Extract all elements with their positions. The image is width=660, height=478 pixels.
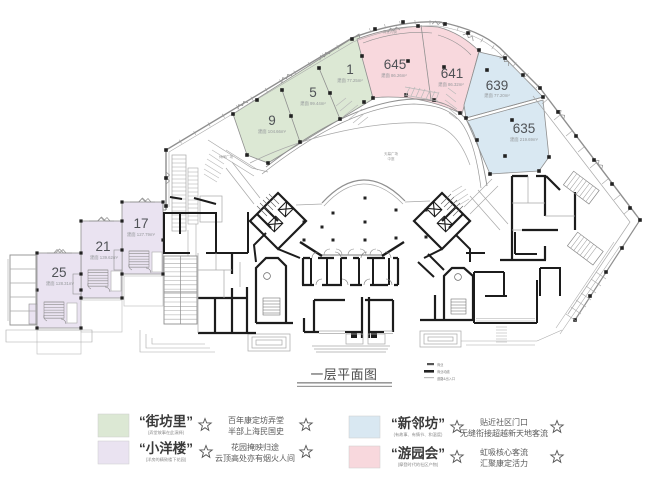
svg-text:汇聚康定活力: 汇聚康定活力: [480, 458, 528, 468]
svg-text:(摩登时代的社区产物): (摩登时代的社区产物): [398, 461, 439, 468]
svg-text:(洋房的精致楼下花园): (洋房的精致楼下花园): [146, 456, 187, 463]
svg-text:商业内街: 商业内街: [383, 29, 397, 34]
svg-text:“小洋楼”: “小洋楼”: [139, 440, 193, 456]
svg-text:商业: 商业: [437, 362, 443, 367]
svg-text:“游园会”: “游园会”: [391, 445, 445, 461]
svg-text:635: 635: [513, 121, 536, 136]
svg-text:(弄堂故事在此演绎): (弄堂故事在此演绎): [148, 429, 185, 436]
svg-text:建面 77.25m²: 建面 77.25m²: [337, 77, 363, 84]
svg-text:虹吸核心客流: 虹吸核心客流: [480, 447, 528, 457]
svg-text:道路&出入口: 道路&出入口: [437, 376, 455, 381]
svg-text:25: 25: [51, 265, 66, 280]
svg-text:(有故事、有情节、和温度): (有故事、有情节、和温度): [394, 431, 443, 438]
svg-text:半部上海民国史: 半部上海民国史: [228, 426, 284, 436]
svg-text:建面 99.44m²: 建面 99.44m²: [300, 100, 326, 107]
svg-text:云顶高处亦有烟火人间: 云顶高处亦有烟火人间: [215, 453, 295, 463]
svg-text:641: 641: [441, 66, 464, 81]
svg-text:一层平面图: 一层平面图: [311, 367, 378, 382]
svg-text:9: 9: [268, 113, 276, 128]
svg-text:百年康定坊弄堂: 百年康定坊弄堂: [228, 415, 284, 425]
svg-text:“新邻坊”: “新邻坊”: [391, 415, 445, 431]
svg-text:17: 17: [133, 216, 148, 231]
svg-text:天幕广场: 天幕广场: [384, 151, 398, 156]
svg-text:无缝衔接超越新天地客流: 无缝衔接超越新天地客流: [460, 428, 548, 438]
svg-text:1: 1: [346, 62, 354, 77]
svg-text:5: 5: [309, 85, 317, 100]
svg-text:商业动线: 商业动线: [437, 369, 451, 374]
svg-text:建面 127.79m²: 建面 127.79m²: [127, 231, 156, 238]
svg-text:建面 86.32m²: 建面 86.32m²: [438, 81, 464, 88]
svg-text:645: 645: [384, 57, 407, 72]
svg-text:休闲广场: 休闲广场: [219, 154, 233, 159]
svg-text:639: 639: [486, 78, 509, 93]
svg-text:建面 128.31m²: 建面 128.31m²: [46, 280, 75, 287]
svg-text:建面 77.20m²: 建面 77.20m²: [484, 92, 510, 99]
svg-text:中庭: 中庭: [388, 156, 396, 161]
svg-text:“街坊里”: “街坊里”: [139, 413, 193, 429]
svg-text:建面 219.69m²: 建面 219.69m²: [510, 136, 539, 143]
svg-text:建面 86.26m²: 建面 86.26m²: [381, 72, 407, 79]
svg-text:建面 104.66m²: 建面 104.66m²: [258, 128, 287, 135]
svg-text:建面 139.62m²: 建面 139.62m²: [90, 254, 119, 261]
svg-text:21: 21: [95, 239, 110, 254]
svg-text:花园掩映归途: 花园掩映归途: [231, 442, 279, 452]
svg-text:贴近社区门口: 贴近社区门口: [480, 417, 528, 427]
